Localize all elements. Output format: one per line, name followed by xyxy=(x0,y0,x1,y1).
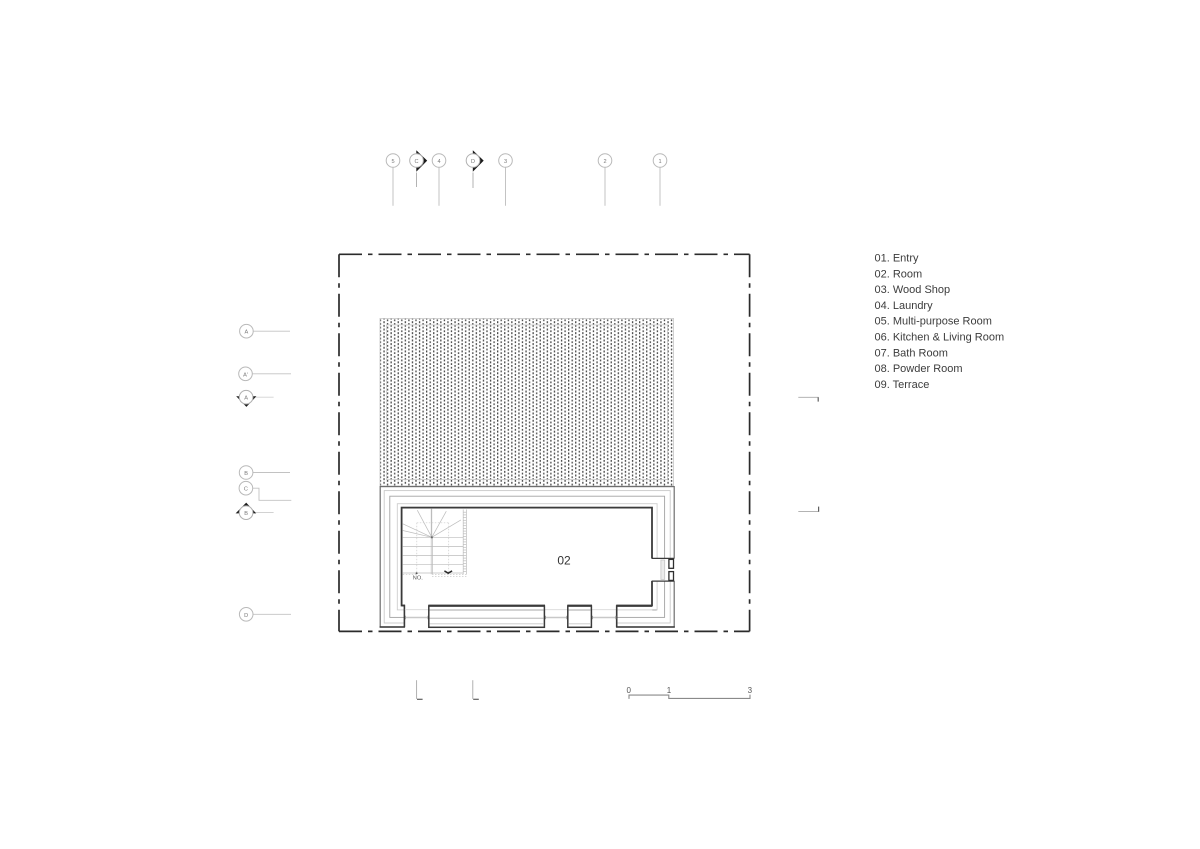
svg-text:5: 5 xyxy=(391,159,394,165)
svg-text:D: D xyxy=(471,159,475,165)
svg-text:3: 3 xyxy=(504,159,507,165)
svg-text:07. Bath Room: 07. Bath Room xyxy=(875,347,948,359)
svg-text:A': A' xyxy=(243,372,248,378)
svg-text:02: 02 xyxy=(557,554,571,568)
svg-text:A: A xyxy=(244,396,248,402)
svg-text:2: 2 xyxy=(603,159,606,165)
svg-text:NO.: NO. xyxy=(413,575,423,581)
svg-text:02. Room: 02. Room xyxy=(875,268,923,280)
svg-text:05. Multi-purpose Room: 05. Multi-purpose Room xyxy=(875,316,992,328)
svg-text:09. Terrace: 09. Terrace xyxy=(875,379,930,391)
svg-text:01. Entry: 01. Entry xyxy=(875,253,920,265)
svg-text:A: A xyxy=(245,330,249,336)
svg-text:06. Kitchen & Living Room: 06. Kitchen & Living Room xyxy=(875,332,1005,344)
svg-text:1: 1 xyxy=(658,159,661,165)
svg-text:B: B xyxy=(244,471,248,477)
svg-text:D: D xyxy=(244,613,248,619)
svg-text:4: 4 xyxy=(437,159,440,165)
svg-text:C: C xyxy=(414,159,418,165)
svg-text:0: 0 xyxy=(626,686,631,695)
svg-text:C: C xyxy=(244,487,248,493)
svg-text:03. Wood Shop: 03. Wood Shop xyxy=(875,284,951,296)
svg-text:B: B xyxy=(244,511,248,517)
svg-text:08. Powder Room: 08. Powder Room xyxy=(875,363,963,375)
svg-text:04. Laundry: 04. Laundry xyxy=(875,300,934,312)
svg-text:3: 3 xyxy=(748,686,753,695)
svg-text:1: 1 xyxy=(667,686,672,695)
